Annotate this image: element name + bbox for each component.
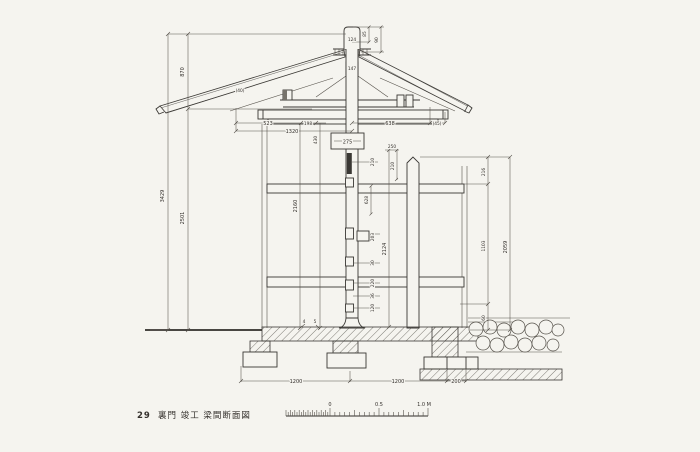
stone-wall <box>466 318 570 352</box>
scale-fine-ticks <box>286 410 328 416</box>
bracket-stub <box>357 231 369 241</box>
dim-eave-span: 1320 <box>286 129 299 135</box>
scale-main-ticks <box>330 408 428 416</box>
dim-kabuki-height: 430 <box>313 136 319 144</box>
figure-number: 29 <box>137 411 151 421</box>
dim-eave-right: 638 <box>385 121 395 127</box>
mortise-3 <box>346 257 354 266</box>
right-pedestal-base <box>424 357 478 369</box>
ref-mark-a: 4 <box>303 319 306 325</box>
dim-cap-h2: 90 <box>374 37 380 43</box>
dim-left-lower: 2501 <box>180 212 186 225</box>
left-upper-rail <box>267 184 346 193</box>
scale-label-half: 0.5 <box>375 402 383 408</box>
mortise-filled <box>347 153 352 174</box>
mortise-4 <box>346 280 354 290</box>
dim-col-1: 210 <box>370 158 376 166</box>
dim-right-2: 1103 <box>481 240 487 251</box>
gate-cross-section-drawing: 3429 870 2501 2160 430 523 198 638 (45) … <box>0 0 700 452</box>
ref-mark-b: 5 <box>314 319 317 325</box>
mortise-5 <box>346 304 354 312</box>
side-walls <box>262 124 467 328</box>
dim-right-1: 216 <box>481 168 487 176</box>
roof <box>156 27 472 114</box>
column-base-flare <box>339 318 365 328</box>
dim-ridge-beam: 147 <box>348 66 356 72</box>
left-lower-rail <box>267 277 346 287</box>
drawing-sheet: 3429 870 2501 2160 430 523 198 638 (45) … <box>0 0 700 452</box>
dim-collar-note: 250 <box>388 144 396 150</box>
support-post <box>407 157 419 328</box>
dim-left-total: 3429 <box>160 190 166 203</box>
left-pedestal-base <box>243 352 277 367</box>
dim-base-right: 1200 <box>392 379 405 385</box>
dim-base-end: 200 <box>451 379 461 385</box>
dim-base-left: 1200 <box>290 379 303 385</box>
dim-cap-width: 124 <box>348 37 356 43</box>
left-wall-edge <box>262 124 267 328</box>
right-purlin-block-2 <box>406 95 413 107</box>
scale-bar: 0 0.5 1.0 M <box>286 402 431 416</box>
dim-eave-right-2: (45) <box>433 121 442 127</box>
scale-label-one: 1.0 M <box>417 402 431 408</box>
dim-col-7: 120 <box>370 304 376 312</box>
dim-col-total: 2124 <box>382 243 388 256</box>
left-purlin-shade <box>283 90 287 100</box>
dimension-lines-right <box>420 155 512 332</box>
dim-cap-h1: 85 <box>362 31 368 37</box>
scale-label-zero: 0 <box>328 402 331 408</box>
center-pedestal <box>333 341 358 353</box>
dim-eave-note: (40) <box>236 88 245 94</box>
dim-eave-left: 523 <box>263 121 273 127</box>
dim-col-3: 203 <box>370 233 376 241</box>
right-roof-slope <box>359 50 468 111</box>
left-pedestal <box>250 341 270 352</box>
mortise-1 <box>346 178 354 187</box>
dim-col-6: 36 <box>370 293 376 299</box>
center-pedestal-base <box>327 353 366 368</box>
dim-eave-left-2: 198 <box>304 121 312 127</box>
dim-col-4: 30 <box>370 260 376 266</box>
dim-right-total: 2059 <box>503 241 509 254</box>
right-foundation-block <box>432 327 458 357</box>
dim-col-2: 628 <box>364 196 370 204</box>
dim-left-upper: 870 <box>180 67 186 77</box>
footing-strip <box>420 369 562 380</box>
mortise-2 <box>346 228 354 239</box>
dim-mid-total: 2160 <box>293 200 299 213</box>
dim-col-5: 220 <box>370 279 376 287</box>
right-purlin-block-1 <box>397 95 404 107</box>
dim-column-width: 275 <box>343 140 353 146</box>
dim-right-3: 60 <box>481 315 487 321</box>
dim-collar-drop: 210 <box>390 162 396 170</box>
figure-title: 裏門 竣工 梁間断面図 <box>158 410 251 421</box>
